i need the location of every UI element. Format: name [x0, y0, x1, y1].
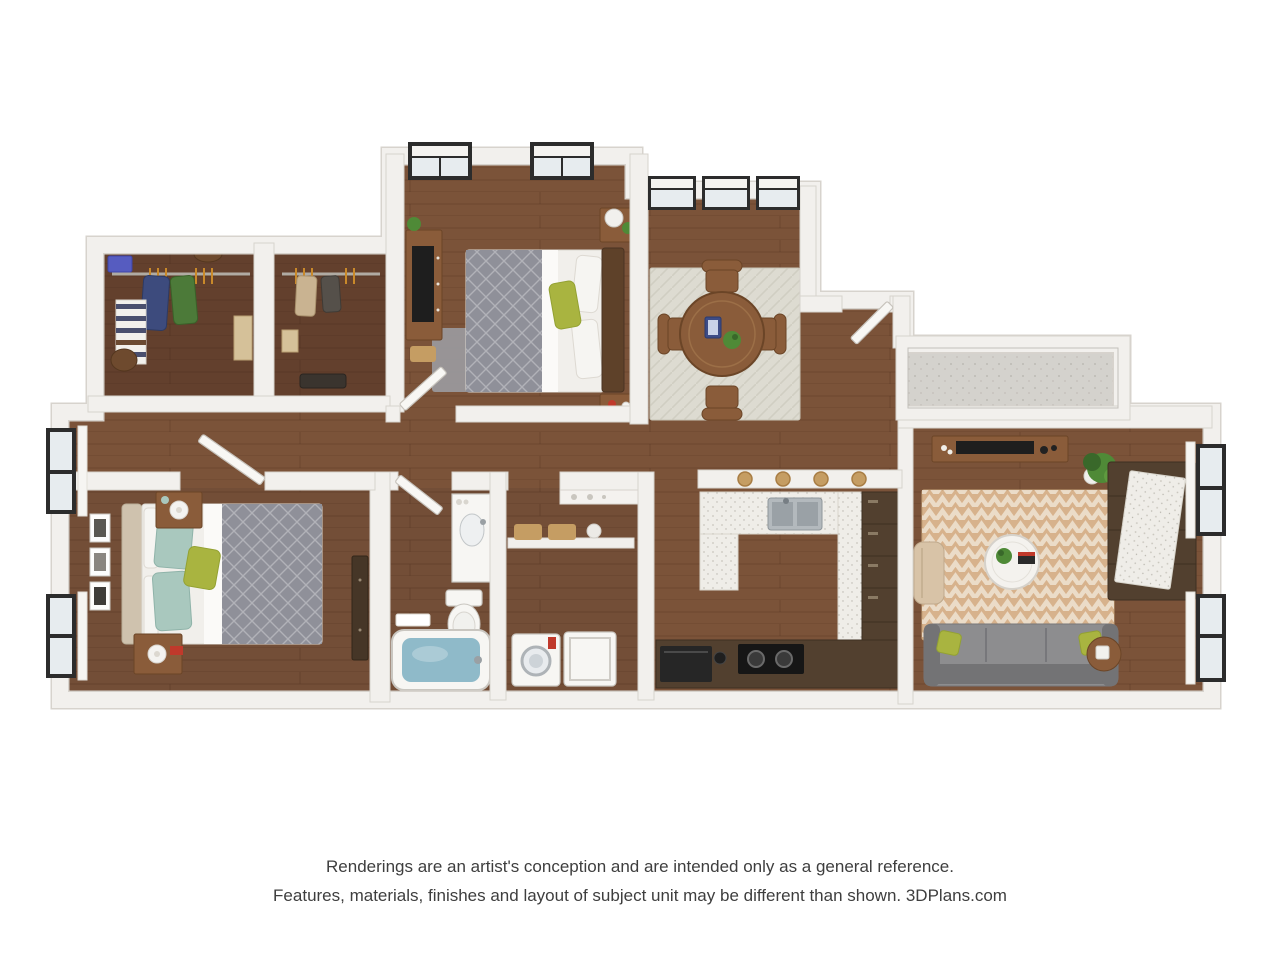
living-window-1 — [1186, 442, 1226, 538]
storage-bin-blue — [108, 256, 132, 272]
master-window-1 — [46, 426, 87, 516]
dresser-with-tv — [406, 217, 442, 362]
disclaimer: Renderings are an artist's conception an… — [0, 852, 1280, 910]
accent-pillow-green — [183, 546, 221, 591]
bedroom2-bed — [466, 248, 624, 392]
storage-box-tan — [282, 330, 298, 352]
headboard — [602, 248, 624, 392]
floor-plan-svg — [0, 0, 1280, 780]
hanging-clothes-green — [170, 275, 198, 325]
wall-art-frames — [90, 514, 110, 610]
towel — [396, 614, 430, 626]
bag-brown — [111, 349, 137, 371]
disclaimer-line-2: Features, materials, finishes and layout… — [0, 881, 1280, 910]
bedroom2-window-2 — [530, 142, 594, 180]
sofa-pillow-left — [936, 630, 962, 656]
bedroom2-window-1 — [408, 142, 472, 180]
storage-boxes-tan — [234, 316, 252, 360]
master-bed — [122, 504, 322, 644]
living-window-2 — [1186, 592, 1226, 684]
dining-chair-bottom — [702, 386, 742, 420]
basket — [514, 524, 542, 540]
floor-plan-rendering — [0, 0, 1280, 780]
coffee-table — [985, 535, 1039, 589]
centerpiece-plant — [723, 331, 741, 349]
shoe-pile — [300, 374, 346, 388]
headboard — [122, 504, 142, 644]
media-console — [352, 556, 368, 660]
bar-cabinet — [1108, 462, 1196, 600]
dining-chair-top — [702, 260, 742, 292]
dining-table — [680, 292, 764, 376]
jar — [587, 524, 601, 538]
plant-on-dresser — [407, 217, 421, 231]
floor-plan-page: Renderings are an artist's conception an… — [0, 0, 1280, 960]
vanity — [452, 494, 492, 582]
nightstand-bottom — [134, 634, 183, 674]
disclaimer-line-1: Renderings are an artist's conception an… — [0, 852, 1280, 881]
basket — [410, 346, 436, 362]
dining-window-2 — [702, 176, 750, 210]
balcony-texture — [906, 348, 1116, 408]
cabinets-bottom — [656, 640, 902, 688]
hanging-clothes-tan — [295, 276, 317, 317]
dining-window-1 — [648, 176, 696, 210]
hanging-clothes-dark — [321, 275, 341, 312]
master-window-2 — [46, 592, 87, 680]
side-table — [1087, 637, 1121, 671]
kitchen-sink — [768, 498, 822, 530]
bathtub — [392, 630, 490, 690]
washer — [512, 634, 560, 686]
cabinets-right — [862, 492, 902, 658]
kitchen-pass-through-wall — [698, 470, 902, 488]
stove — [738, 644, 804, 674]
tv-console — [932, 436, 1068, 462]
dining-window-3 — [756, 176, 800, 210]
basket — [548, 524, 576, 540]
pot — [714, 652, 726, 664]
kitchen-living-wall — [898, 428, 913, 704]
accent-chair — [914, 542, 944, 604]
dryer — [564, 632, 616, 686]
nightstand-top — [156, 492, 202, 528]
table-plant — [996, 548, 1012, 564]
